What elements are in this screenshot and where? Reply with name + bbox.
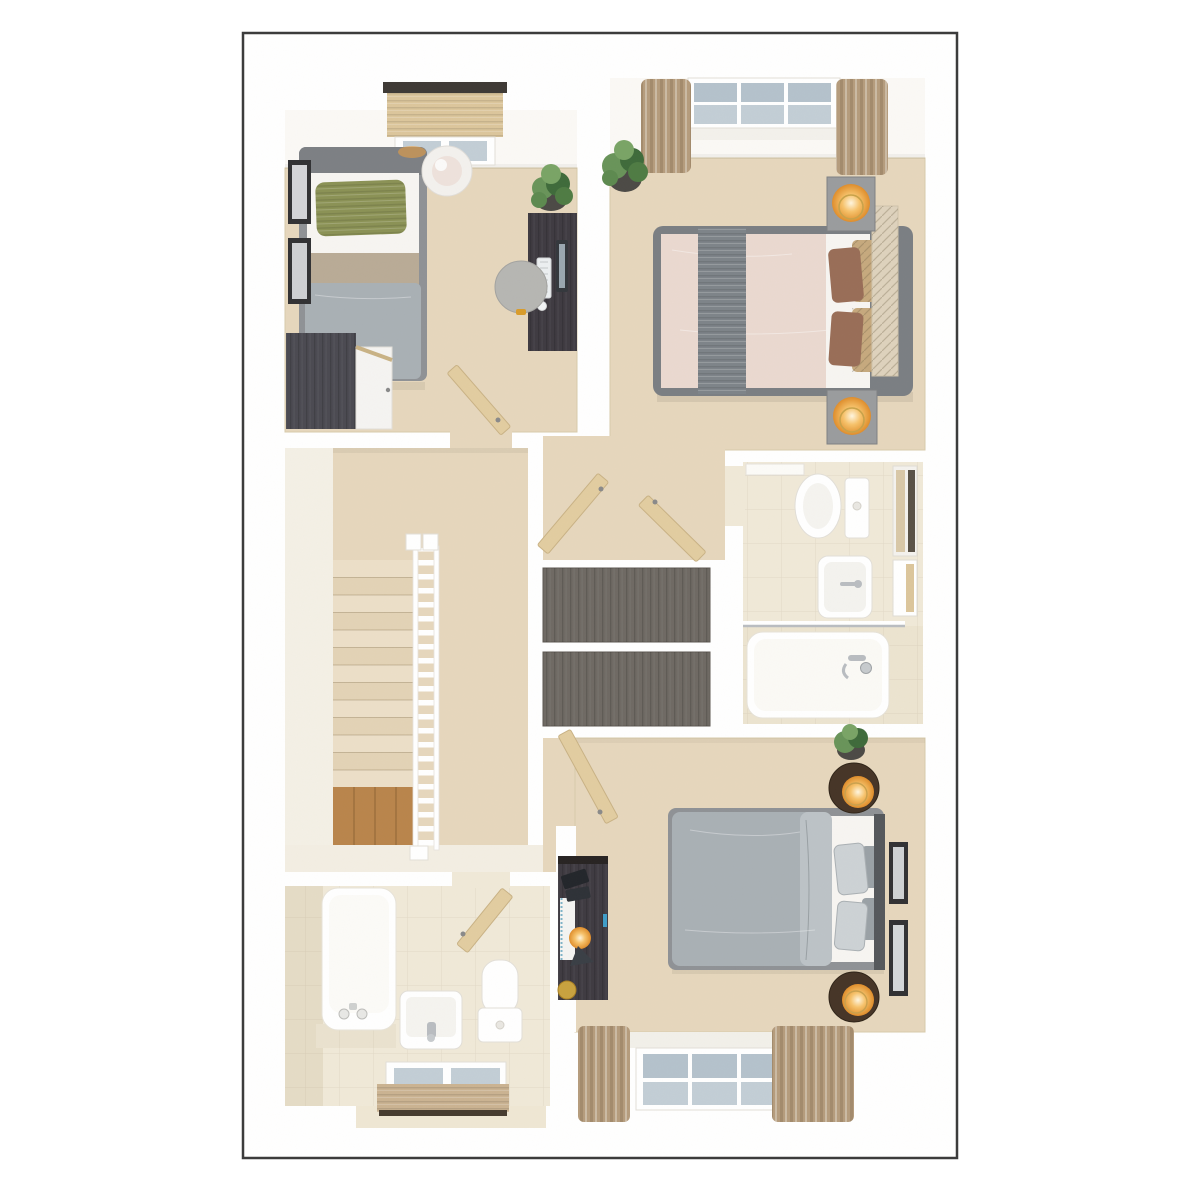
floor-plan-svg (0, 0, 1200, 1200)
floor-plan-image (0, 0, 1200, 1200)
render-grain-overlay (243, 33, 957, 1158)
